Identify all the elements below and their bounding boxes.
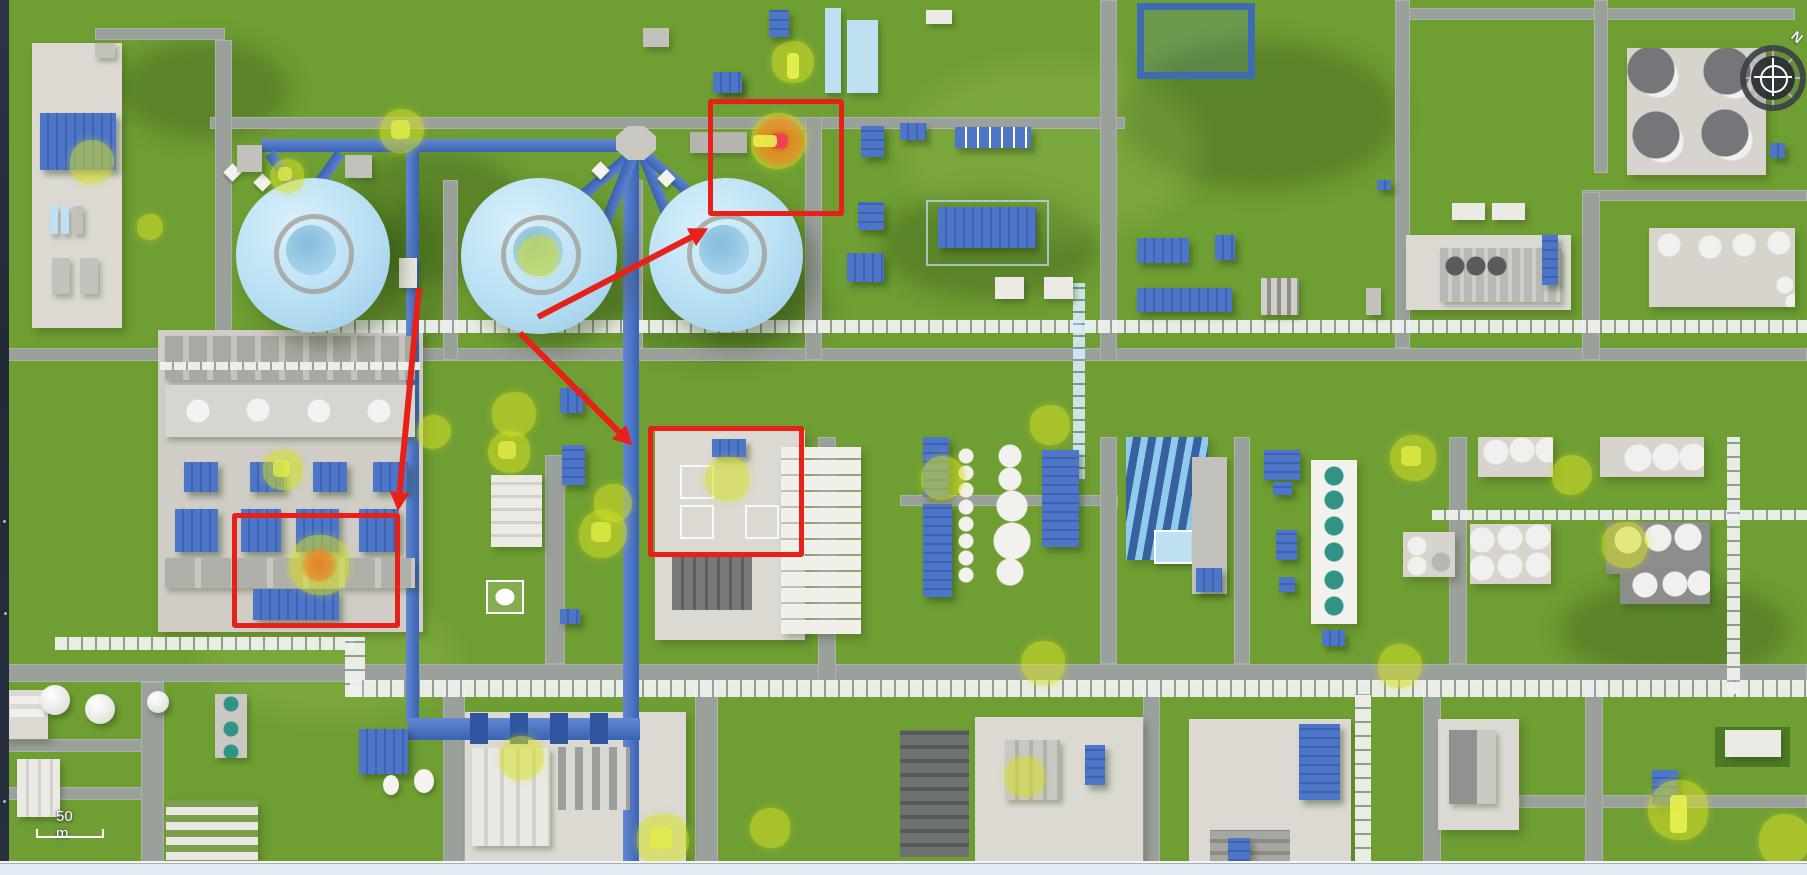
blue-building <box>847 253 884 282</box>
road <box>215 40 232 360</box>
white-sphere-tank <box>85 694 115 724</box>
blue-tower-block <box>1273 482 1292 495</box>
container-rows <box>672 557 752 610</box>
road <box>1594 0 1608 173</box>
marker-core <box>591 522 611 542</box>
striped-building <box>1261 278 1299 315</box>
alert-marker[interactable] <box>417 415 451 449</box>
alert-marker[interactable] <box>637 814 689 866</box>
blue-tower-block <box>1276 530 1297 560</box>
road <box>443 180 458 360</box>
alert-marker[interactable] <box>1030 405 1070 445</box>
blue-cube <box>560 609 580 624</box>
road <box>443 682 465 875</box>
alert-marker[interactable] <box>1648 780 1708 840</box>
marker-core <box>1401 446 1421 466</box>
marker-core-bar <box>1670 795 1687 833</box>
manifold-knob <box>590 713 608 744</box>
road <box>1582 192 1600 360</box>
blue-building <box>713 72 742 93</box>
small-tank <box>73 206 83 234</box>
boiler-panel <box>184 462 218 492</box>
blue-building <box>1042 450 1079 547</box>
utility-pad-topleft[interactable] <box>32 43 122 328</box>
road <box>1100 437 1117 664</box>
blue-building <box>923 504 952 597</box>
blue-building <box>1085 745 1105 785</box>
blue-building <box>1377 180 1391 190</box>
white-building-on-hedge <box>1725 730 1781 757</box>
road <box>695 682 718 875</box>
gyroscope-icon-axis <box>1772 58 1774 96</box>
marker-core <box>498 441 516 459</box>
outer-background-strip <box>0 0 9 875</box>
tank-pad[interactable] <box>1470 524 1551 584</box>
tank-pad[interactable] <box>1478 437 1553 477</box>
small-building <box>1366 288 1381 315</box>
blue-tower-block <box>1279 577 1295 592</box>
white-egg-tank <box>414 769 434 793</box>
pipe-rack-vertical <box>1727 437 1740 694</box>
blue-building <box>861 126 884 157</box>
manifold-knob <box>550 713 568 744</box>
alert-marker[interactable] <box>518 236 558 276</box>
pump-columns <box>558 747 630 810</box>
alert-marker[interactable] <box>772 41 814 83</box>
pipe-valve-box <box>399 258 417 288</box>
white-stair-building[interactable] <box>491 475 542 547</box>
white-square-building <box>1044 277 1073 299</box>
alert-marker[interactable] <box>1021 641 1065 685</box>
small-tank-pad <box>1403 532 1455 577</box>
road <box>1582 190 1807 201</box>
tall-white-building[interactable] <box>17 759 60 817</box>
blue-cube <box>1322 630 1345 646</box>
road <box>0 739 161 752</box>
tank-row-pad-right[interactable] <box>1649 228 1795 307</box>
turbine-hall-top <box>165 336 415 380</box>
small-building <box>643 28 669 47</box>
white-square-building <box>995 277 1024 299</box>
road <box>1143 682 1160 875</box>
white-twin-building <box>1452 203 1485 220</box>
pipe-block <box>253 173 271 191</box>
compass-widget[interactable]: N <box>1740 45 1806 111</box>
alert-marker[interactable] <box>1602 522 1648 568</box>
marker-core <box>650 827 672 849</box>
blue-warehouse <box>1215 235 1235 260</box>
compass-north-label: N <box>1788 28 1806 47</box>
boiler-panel-large <box>175 509 218 552</box>
alert-marker[interactable] <box>488 431 530 473</box>
road <box>1585 682 1603 875</box>
white-sphere-tank <box>147 691 169 713</box>
small-building <box>345 155 372 178</box>
arrowhead <box>388 491 410 512</box>
alert-marker[interactable] <box>594 484 632 522</box>
sphere-crater <box>286 225 336 275</box>
blue-building <box>1542 235 1558 285</box>
alert-marker[interactable] <box>1390 435 1436 481</box>
pipe-rack-west <box>55 637 355 650</box>
manifold-knob <box>470 713 488 744</box>
small-tanks <box>61 206 69 234</box>
blue-panel <box>1196 568 1222 592</box>
blue-building-cluster[interactable] <box>938 207 1036 248</box>
dark-roof-building[interactable] <box>1449 730 1496 804</box>
blue-warehouse[interactable] <box>1137 288 1232 312</box>
marker-core-bar <box>787 53 799 79</box>
annotation-box <box>648 426 804 557</box>
pond-outline <box>1137 3 1255 79</box>
cooling-fans-unit[interactable] <box>215 694 247 758</box>
pipe-rack-right <box>1432 510 1807 520</box>
alert-marker[interactable] <box>263 450 303 490</box>
boiler-panel <box>313 462 347 492</box>
light-blue-tower <box>825 8 841 93</box>
aeration-building[interactable] <box>1311 460 1357 624</box>
marker-core <box>391 120 410 139</box>
white-egg-tank <box>383 775 399 795</box>
pipe-rack-east-west-main <box>350 680 1807 697</box>
alert-marker[interactable] <box>1759 814 1807 866</box>
blue-building <box>900 123 926 140</box>
blue-flat-building <box>359 729 408 774</box>
road <box>1234 437 1250 664</box>
white-box-rows <box>10 691 44 717</box>
alert-marker[interactable] <box>1552 455 1592 495</box>
blue-building <box>858 202 884 230</box>
white-pipe-south <box>1355 694 1371 875</box>
window-bottom-edge <box>0 861 1807 875</box>
alert-marker[interactable] <box>750 808 790 848</box>
alert-marker[interactable] <box>492 392 536 436</box>
blue-striped-building[interactable] <box>1299 724 1340 800</box>
blue-building <box>769 10 789 37</box>
annotation-box <box>232 513 400 628</box>
dome-tank-column-large <box>992 444 1032 586</box>
blue-building <box>562 445 585 485</box>
dark-container-block <box>900 730 969 857</box>
machinery-row <box>165 385 415 437</box>
pump-skid <box>52 258 70 294</box>
road <box>1100 0 1117 361</box>
small-tanks <box>50 206 58 234</box>
alert-marker[interactable] <box>137 214 163 240</box>
pipe-main-horizontal <box>261 139 635 152</box>
tank-pad[interactable] <box>1600 437 1704 477</box>
scale-bar-bracket <box>36 829 104 838</box>
pump-skid <box>80 258 98 294</box>
plant-map-canvas[interactable]: N 50 m <box>0 0 1807 875</box>
white-twin-building <box>1492 203 1525 220</box>
light-blue-tower <box>847 20 878 93</box>
rooftop-unit <box>95 43 115 58</box>
marker-core <box>273 460 290 477</box>
storage-sphere-1[interactable] <box>236 178 390 332</box>
gyroscope-icon <box>1760 65 1788 93</box>
background-star <box>3 520 6 523</box>
fenced-unit <box>486 580 524 614</box>
background-star <box>4 612 7 615</box>
road <box>95 28 225 40</box>
pipe-hub-octagon <box>616 126 656 160</box>
road <box>545 455 565 664</box>
annotation-box <box>708 99 844 216</box>
small-building <box>237 145 262 172</box>
blue-building <box>1770 143 1785 158</box>
plant-pipe <box>160 362 420 370</box>
small-building <box>926 10 952 24</box>
alert-marker[interactable] <box>270 159 304 193</box>
white-sphere-tank <box>40 685 70 715</box>
dark-tank-pad[interactable] <box>1620 570 1710 604</box>
marker-core <box>278 167 292 181</box>
blue-tower-block <box>1264 450 1300 480</box>
blue-warehouse[interactable] <box>1137 238 1189 263</box>
blue-truck-dock <box>955 127 1031 148</box>
alert-marker[interactable] <box>1005 757 1045 797</box>
background-star <box>3 800 6 803</box>
